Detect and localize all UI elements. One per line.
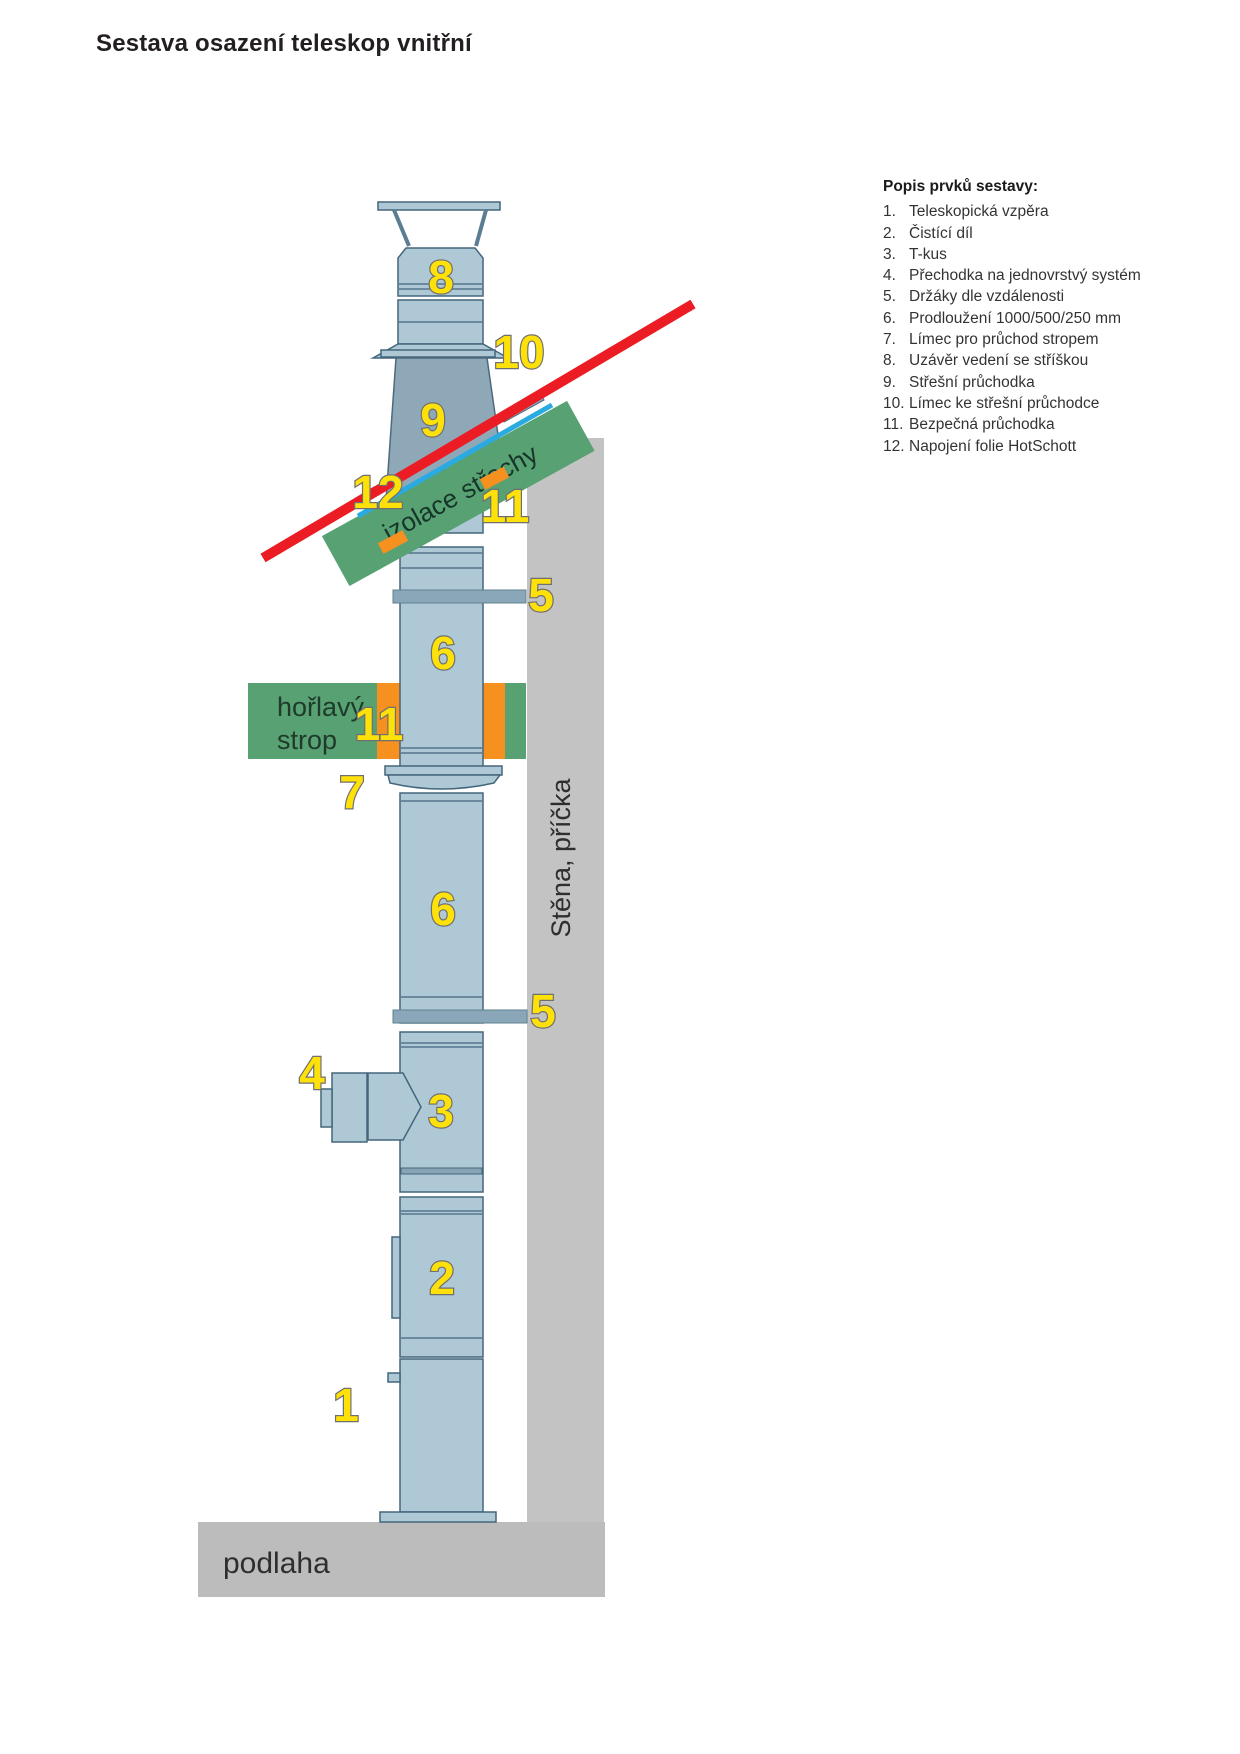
callout-11-roof: 11 xyxy=(481,480,530,532)
callout-8: 8 xyxy=(428,251,454,303)
callout-6-lower: 6 xyxy=(430,883,456,935)
adapter-section xyxy=(332,1073,367,1142)
wall-label: Stěna, příčka xyxy=(546,777,576,937)
flammable-ceiling-label-2: strop xyxy=(277,725,337,755)
orange-seal-right xyxy=(483,683,505,759)
base-plate xyxy=(380,1512,496,1522)
tee-joint-band xyxy=(401,1168,482,1174)
strut-knob xyxy=(388,1373,400,1382)
floor-label: podlaha xyxy=(223,1547,330,1580)
callout-11-ceiling: 11 xyxy=(355,698,404,750)
callout-5-lower: 5 xyxy=(530,985,556,1037)
ceiling-collar-skirt xyxy=(388,775,500,789)
flammable-ceiling-label-1: hořlavý xyxy=(277,692,365,722)
callout-3: 3 xyxy=(428,1085,454,1137)
callout-10: 10 xyxy=(493,326,544,378)
callout-6-upper: 6 xyxy=(430,627,456,679)
rain-cap-strut-left xyxy=(394,210,409,246)
rain-cap-strut-right xyxy=(476,210,486,246)
cleaning-door xyxy=(392,1237,400,1318)
callout-7: 7 xyxy=(339,766,365,818)
assembly-diagram: izolace střechy hořlavý strop Stěna, pří… xyxy=(0,0,1240,1754)
callout-12: 12 xyxy=(352,466,403,518)
callout-2: 2 xyxy=(429,1252,455,1304)
wall-bracket-lower xyxy=(393,1010,527,1023)
callout-9: 9 xyxy=(420,394,446,446)
storm-collar-bar xyxy=(381,350,495,357)
wall-bracket-upper xyxy=(393,590,526,603)
callout-5-upper: 5 xyxy=(528,569,554,621)
telescopic-strut-section xyxy=(400,1359,483,1512)
callout-1: 1 xyxy=(333,1379,359,1431)
ceiling-collar-flange xyxy=(385,766,502,775)
document-page: Sestava osazení teleskop vnitřní Popis p… xyxy=(0,0,1240,1754)
callout-4: 4 xyxy=(299,1047,325,1099)
rain-cap-plate xyxy=(378,202,500,210)
